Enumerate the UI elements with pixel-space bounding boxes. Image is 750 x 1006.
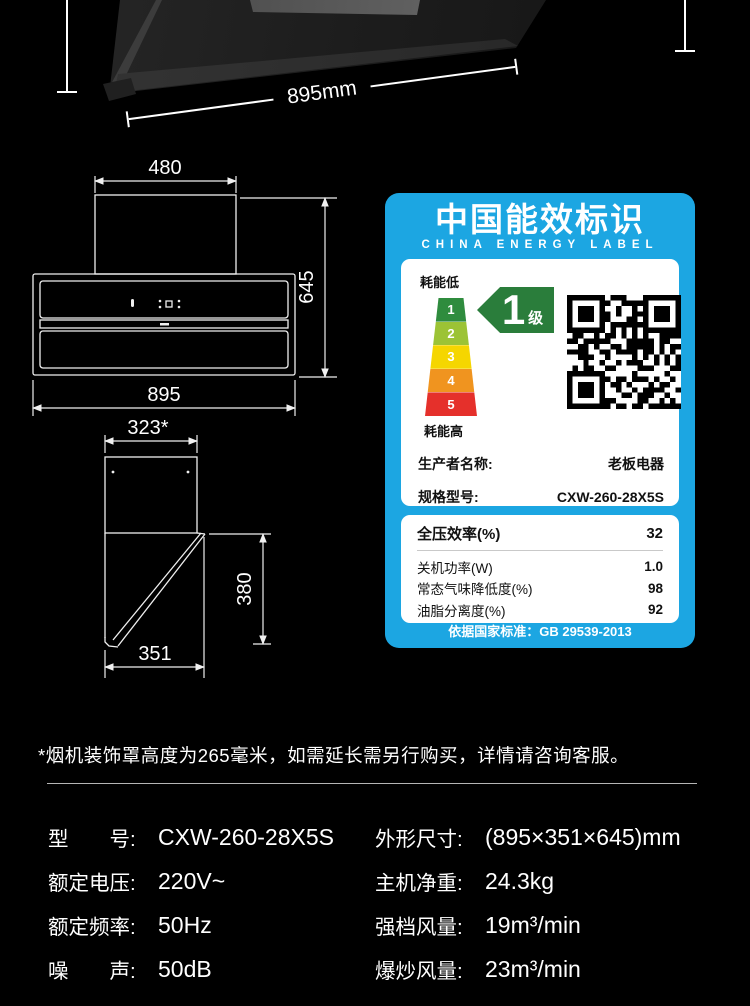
metric-value: 1.0 <box>644 559 663 574</box>
energy-rating-panel: 耗能低 1 2 3 4 5 耗能高 1 级 生产者名称: 老板电器 规格 <box>401 259 679 506</box>
front-bottom-width-value: 895 <box>147 384 180 406</box>
producer-row: 生产者名称: 老板电器 <box>418 454 664 474</box>
national-standard-footer: 依据国家标准：GB 29539-2013 <box>385 621 695 640</box>
producer-value: 老板电器 <box>608 454 664 474</box>
metric-label: 全压效率(%) <box>417 523 500 544</box>
metric-row: 油脂分离度(%) 92 <box>417 599 663 621</box>
rating-value: 1 <box>502 288 525 332</box>
energy-level-2: 2 <box>423 322 479 346</box>
qr-code <box>567 295 681 409</box>
spec-column-left: 型 号: CXW-260-28X5S 额定电压: 220V~ 额定频率: 50H… <box>48 815 368 991</box>
energy-metrics-panel: 全压效率(%) 32 关机功率(W) 1.0 常态气味降低度(%) 98 油脂分… <box>401 515 679 623</box>
china-energy-label: 中国能效标识 CHINA ENERGY LABEL 耗能低 1 2 3 4 5 … <box>385 193 695 648</box>
spec-value: 19m³/min <box>485 912 581 939</box>
metric-row: 全压效率(%) 32 <box>417 515 663 551</box>
rating-badge: 1 级 <box>477 287 554 333</box>
product-photo-section: 895mm <box>0 0 750 152</box>
spec-row-dimensions: 外形尺寸: (895×351×645)mm <box>375 815 745 859</box>
overall-width-value: 895mm <box>272 75 372 112</box>
spec-row-weight: 主机净重: 24.3kg <box>375 859 745 903</box>
right-extension-line <box>684 0 686 50</box>
spec-label: 噪 声: <box>48 954 154 984</box>
left-extension-line <box>66 0 68 92</box>
spec-row-voltage: 额定电压: 220V~ <box>48 859 368 903</box>
dimension-line <box>129 99 274 121</box>
metric-value: 98 <box>648 581 663 596</box>
energy-pyramid: 1 2 3 4 5 <box>423 298 479 416</box>
range-hood-product-page: 895mm 480 <box>0 0 750 1006</box>
touch-control-icons <box>131 299 180 308</box>
spec-value: 24.3kg <box>485 868 554 895</box>
section-divider <box>47 783 697 784</box>
spec-label: 主机净重: <box>375 866 481 896</box>
energy-level-5: 5 <box>423 392 479 416</box>
chimney-note: *烟机装饰罩高度为265毫米，如需延长需另行购买，详情请咨询客服。 <box>38 742 629 768</box>
metric-label: 关机功率(W) <box>417 557 493 577</box>
spec-row-noise: 噪 声: 50dB <box>48 947 368 991</box>
side-bottom-width-value: 351 <box>138 643 171 665</box>
spec-value: (895×351×645)mm <box>485 824 681 851</box>
spec-value: 50Hz <box>158 912 212 939</box>
model-row: 规格型号: CXW-260-28X5S <box>418 487 664 507</box>
spec-row-frequency: 额定频率: 50Hz <box>48 903 368 947</box>
energy-level-4: 4 <box>423 369 479 393</box>
spec-label: 型 号: <box>48 822 154 852</box>
spec-value: CXW-260-28X5S <box>158 824 334 851</box>
energy-level-3: 3 <box>423 345 479 369</box>
metric-row: 常态气味降低度(%) 98 <box>417 578 663 600</box>
right-extension-tick <box>675 50 695 52</box>
front-view-drawing: 480 645 895 <box>20 155 345 421</box>
side-view-drawing: 323* 380 351 <box>85 420 285 686</box>
spec-row-max-airflow: 强档风量: 19m³/min <box>375 903 745 947</box>
spec-value: 220V~ <box>158 868 225 895</box>
model-label: 规格型号: <box>418 487 479 507</box>
spec-row-boost-airflow: 爆炒风量: 23m³/min <box>375 947 745 991</box>
spec-column-right: 外形尺寸: (895×351×645)mm 主机净重: 24.3kg 强档风量:… <box>375 815 745 991</box>
metric-value: 92 <box>648 602 663 617</box>
brand-mark <box>160 323 169 326</box>
dimension-end-tick <box>514 59 518 75</box>
spec-label: 额定电压: <box>48 866 154 896</box>
front-top-width-value: 480 <box>148 157 181 179</box>
front-height-value: 645 <box>296 270 318 303</box>
spec-value: 23m³/min <box>485 956 581 983</box>
energy-level-1: 1 <box>423 298 479 322</box>
low-consumption-label: 耗能低 <box>420 272 459 291</box>
spec-label: 强档风量: <box>375 910 481 940</box>
energy-label-header: 中国能效标识 CHINA ENERGY LABEL <box>385 193 695 251</box>
metric-value: 32 <box>646 525 663 542</box>
high-consumption-label: 耗能高 <box>424 421 463 440</box>
metric-row: 关机功率(W) 1.0 <box>417 556 663 578</box>
spec-row-model: 型 号: CXW-260-28X5S <box>48 815 368 859</box>
spec-label: 爆炒风量: <box>375 954 481 984</box>
producer-label: 生产者名称: <box>418 454 493 474</box>
left-extension-tick <box>57 91 77 93</box>
side-depth-value: 380 <box>234 572 256 605</box>
dimension-line <box>370 66 515 88</box>
spec-value: 50dB <box>158 956 212 983</box>
spec-label: 额定频率: <box>48 910 154 940</box>
side-top-width-value: 323* <box>127 417 168 439</box>
metric-label: 常态气味降低度(%) <box>417 578 533 598</box>
energy-label-title: 中国能效标识 <box>385 202 695 238</box>
metric-label: 油脂分离度(%) <box>417 600 506 620</box>
energy-label-subtitle: CHINA ENERGY LABEL <box>385 239 695 251</box>
model-value: CXW-260-28X5S <box>557 489 664 505</box>
rating-unit: 级 <box>528 307 543 328</box>
spec-label: 外形尺寸: <box>375 822 481 852</box>
